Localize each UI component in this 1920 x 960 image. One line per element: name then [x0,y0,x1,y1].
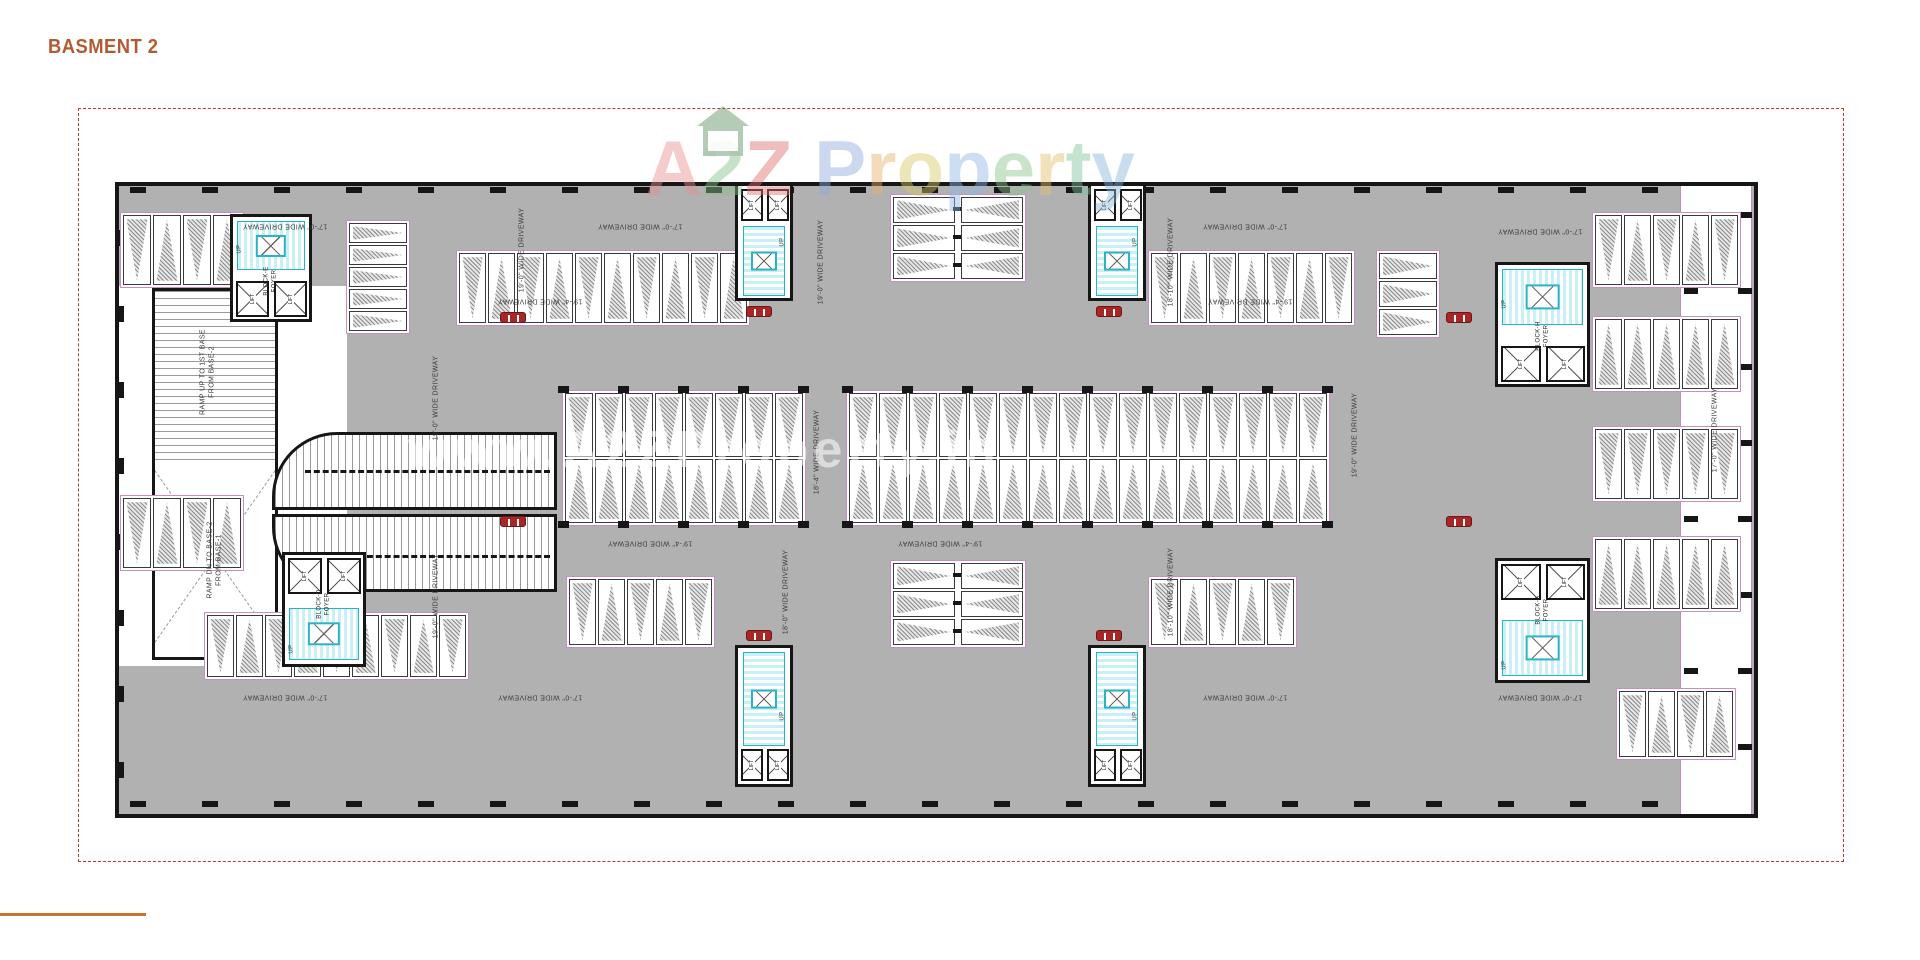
car-window [1104,633,1106,640]
parking-stall [349,223,407,243]
driveway-label: 17'-0" WIDE DRIVEWAY [498,692,583,701]
ramp-upper-arm [272,432,557,510]
stall-wedge [1656,432,1677,496]
column-tick [1210,801,1226,807]
parking-stall [575,253,602,323]
stall-wedge [1656,542,1677,606]
parking-stall [999,459,1027,523]
column-tick [1282,801,1298,807]
stall-wedge [568,462,590,520]
stall-wedge [1680,694,1701,754]
stair-up-label: UP [1501,660,1509,669]
stall-wedge [882,396,904,454]
stall-wedge [1242,462,1264,520]
stall-wedge [598,462,620,520]
stall-wedge [912,462,934,520]
parking-stall [1089,459,1117,523]
car-window [1463,519,1465,526]
stall-wedge [1002,462,1024,520]
parking-stall [879,459,907,523]
parking-stall-group [566,576,715,648]
stall-wedge [1598,322,1619,386]
parking-stall [1209,459,1237,523]
parking-stall [961,591,1023,617]
column-tick [118,458,124,474]
parking-stall [1653,319,1680,389]
column-tick [1570,801,1586,807]
parking-stall [1209,253,1236,323]
stall-wedge [1182,396,1204,454]
stall-wedge [942,396,964,454]
stall-wedge [126,218,148,282]
parking-stall [1619,691,1646,757]
stall-wedge [718,462,740,520]
column-tick [1082,521,1093,528]
lift-shaft: LIFT [1546,346,1586,382]
column-tick [922,801,938,807]
stall-row [565,393,803,457]
car-icon [1096,306,1122,317]
driveway-label: 18'-0" WIDE DRIVEWAY [783,550,792,635]
parking-stall [1653,429,1680,499]
stall-wedge [1272,462,1294,520]
column-tick [1282,187,1298,193]
floor-plan: LIFTLIFTBLOCK-E FOYERUPLIFTLIFTBLOCK-D F… [0,0,1920,960]
driveway-label: 19'-4" WIDE DRIVEWAY [1208,296,1293,305]
parking-stall [1595,215,1622,285]
lift-label: LIFT [1102,759,1108,771]
parking-stall [685,579,712,645]
stall-wedge [688,462,710,520]
parking-stall [1269,459,1297,523]
lift-label: LIFT [775,759,781,771]
stall-wedge [1656,218,1677,282]
column-tick [1642,801,1658,807]
lift-label: LIFT [749,759,755,771]
parking-stall [565,393,593,457]
lift-label: LIFT [1562,358,1568,370]
parking-stall [1267,579,1294,645]
column-tick [1354,801,1370,807]
stall-wedge [628,462,650,520]
parking-stall [745,393,773,457]
stall-wedge [462,256,483,320]
driveway-label: 18'-4" WIDE DRIVEWAY [814,410,823,495]
lift-label: LIFT [288,293,294,305]
block-foyer-label: BLOCK-H FOYER [1535,321,1550,350]
parking-stall [153,498,181,568]
column-tick [1202,386,1213,393]
parking-stall [1119,393,1147,457]
column-tick [490,187,506,193]
column-tick [1138,801,1154,807]
column-tick [418,801,434,807]
stall-wedge [964,622,1020,642]
column-tick [562,801,578,807]
parking-stall [969,393,997,457]
parking-stall [715,459,743,523]
lift-label: LIFT [302,570,308,582]
staircase [743,652,785,746]
car-window [1463,315,1465,322]
parking-stall [1648,691,1675,757]
car-window [517,519,519,526]
driveway-label: 17'-0" WIDE DRIVEWAY [1712,388,1721,473]
parking-stall [1059,459,1087,523]
driveway-label: 18'-10" WIDE DRIVEWAY [1168,548,1177,637]
parking-stall [1239,393,1267,457]
stall-wedge [896,594,952,614]
stall-wedge [972,462,994,520]
block-foyer-label: BLOCK-A FOYER [1535,595,1550,624]
stall-wedge [912,396,934,454]
driveway-label: 19'-4" WIDE DRIVEWAY [608,538,693,547]
parking-stall [685,393,713,457]
parking-stall [123,215,151,285]
parking-stall [1682,319,1709,389]
column-tick [953,629,961,633]
lift-shaft: LIFT [274,281,307,317]
stall-wedge [1122,396,1144,454]
stair-landing-box [1525,284,1560,309]
column-tick [1738,668,1752,674]
stall-wedge [126,501,148,565]
stall-wedge [658,396,680,454]
stall-wedge [1627,322,1648,386]
parking-stall [1624,319,1651,389]
column-tick [738,386,749,393]
parking-stall [849,459,877,523]
stall-wedge [384,618,405,674]
car-window [754,309,756,316]
stall-wedge [568,396,590,454]
parking-stall [569,579,596,645]
column-tick [1684,668,1698,674]
stair-landing-box [751,252,777,271]
parking-stall [879,393,907,457]
stall-wedge [630,582,651,642]
column-tick [953,235,961,239]
stall-wedge [1092,462,1114,520]
lift-label: LIFT [250,293,256,305]
page: BASMENT 2 LIFTLIFTBLOCK-E FOYERUPLIFTLIF… [0,0,1920,960]
stall-wedge [748,462,770,520]
stall-wedge [688,396,710,454]
driveway-label: 17'-0" WIDE DRIVEWAY [243,221,328,230]
car-icon [1446,312,1472,323]
stall-wedge [1685,542,1706,606]
parking-stall-block [562,390,806,526]
parking-stall [1711,215,1738,285]
lift-label: LIFT [1102,199,1108,211]
stall-wedge [972,396,994,454]
parking-stall-group [1616,688,1736,760]
stair-up-label: UP [779,711,787,720]
stall-wedge [186,501,208,565]
parking-stall [595,393,623,457]
stair-landing-box [256,234,286,256]
parking-stall [1238,253,1265,323]
parking-stall [893,563,955,589]
driveway-label: 19'-0" WIDE DRIVEWAY [519,208,528,293]
parking-stall [1595,429,1622,499]
car-window [1104,309,1106,316]
parking-stall [1682,539,1709,609]
column-tick [1738,744,1752,750]
car-window [763,309,765,316]
column-tick [953,263,961,267]
stall-wedge [1183,582,1204,642]
column-tick [1684,288,1698,294]
stall-wedge [352,248,404,262]
parking-stall [1595,319,1622,389]
parking-stall [349,267,407,287]
parking-stall [893,197,955,223]
driveway-label: 19'-0" WIDE DRIVEWAY [1352,393,1361,478]
stall-row [565,459,803,523]
stall-wedge [1182,462,1204,520]
stall-row [849,393,1327,457]
parking-stall [1239,459,1267,523]
column-tick [1022,521,1033,528]
column-tick [118,306,124,322]
parking-stall [1379,253,1437,279]
column-tick [902,386,913,393]
parking-stall [1711,319,1738,389]
parking-stall [775,459,803,523]
parking-stall [183,215,211,285]
parking-stall [1624,429,1651,499]
stall-wedge [896,228,952,248]
parking-stall [655,459,683,523]
parking-stall [625,459,653,523]
stall-wedge [156,501,178,565]
car-icon [500,312,526,323]
parking-stall [893,619,955,645]
parking-stall [1180,253,1207,323]
column-tick [1498,187,1514,193]
parking-stall [655,393,683,457]
parking-stall [1299,459,1327,523]
parking-stall [1180,579,1207,645]
stall-wedge [601,582,622,642]
column-tick [1498,801,1514,807]
stall-wedge [778,396,800,454]
column-tick [1426,801,1442,807]
column-tick [678,386,689,393]
driveway-label: 19'-4" WIDE DRIVEWAY [498,296,583,305]
parking-stall [1299,393,1327,457]
column-tick [953,601,961,605]
stall-wedge [210,618,231,674]
column-tick [778,801,794,807]
car-icon [746,306,772,317]
parking-stall [909,459,937,523]
lift-label: LIFT [1518,576,1524,588]
parking-stall [123,498,151,568]
stall-wedge [239,618,260,674]
column-tick [1738,288,1752,294]
stall-wedge [578,256,599,320]
parking-stall [893,591,955,617]
lift-label: LIFT [1128,759,1134,771]
column-tick [1262,386,1273,393]
stall-wedge [1685,432,1706,496]
parking-stall [961,197,1023,223]
parking-stall [207,615,234,677]
column-tick [962,386,973,393]
lift-label: LIFT [775,199,781,211]
stall-wedge [694,256,715,320]
stall-wedge [156,218,178,282]
driveway-label: 18'-10" WIDE DRIVEWAY [1168,218,1177,307]
lift-shaft: LIFT [767,749,789,781]
parking-stall [969,459,997,523]
staircase [1502,620,1583,676]
stall-wedge [1627,542,1648,606]
column-tick [706,801,722,807]
stall-wedge [1685,322,1706,386]
parking-stall [1677,691,1704,757]
car-window [763,633,765,640]
stall-wedge [1714,218,1735,282]
column-tick [842,521,853,528]
parking-stall [349,311,407,331]
staircase [1502,269,1583,325]
stall-wedge [1382,312,1434,332]
column-tick [953,207,961,211]
parking-stall [1682,215,1709,285]
stall-wedge [186,218,208,282]
stall-wedge [665,256,686,320]
column-tick [1570,187,1586,193]
stall-wedge [491,256,512,320]
parking-stall [685,459,713,523]
driveway-label: 19'-0" WIDE DRIVEWAY [818,220,827,305]
stall-wedge [1627,218,1648,282]
column-tick [850,187,866,193]
stall-wedge [1328,256,1349,320]
stall-wedge [852,396,874,454]
stall-wedge [778,462,800,520]
parking-stall [1089,393,1117,457]
car-window [508,519,510,526]
column-tick [902,521,913,528]
stall-wedge [659,582,680,642]
stall-wedge [896,256,952,276]
driveway-label: 17'-0" WIDE DRIVEWAY [1498,692,1583,701]
stall-wedge [413,618,434,674]
stall-wedge [1302,396,1324,454]
column-tick [953,573,961,577]
car-window [1113,633,1115,640]
column-tick [922,187,938,193]
stall-wedge [1598,218,1619,282]
parking-stall-group [346,220,410,334]
lift-shaft: LIFT [1546,564,1586,600]
parking-stall [745,459,773,523]
stall-wedge [1714,542,1735,606]
parking-stall [565,459,593,523]
stall-wedge [1651,694,1672,754]
column-tick [842,386,853,393]
stall-wedge [1152,462,1174,520]
column-tick [490,801,506,807]
parking-stall [1682,429,1709,499]
column-tick [1202,521,1213,528]
car-window [754,633,756,640]
stall-wedge [1627,432,1648,496]
parking-stall-group [1376,250,1440,338]
stall-wedge [748,396,770,454]
column-tick [1684,516,1698,522]
car-window [1454,315,1456,322]
parking-stall [1711,539,1738,609]
parking-stall [1706,691,1733,757]
column-tick [118,382,124,398]
stall-wedge [1062,462,1084,520]
column-tick [962,521,973,528]
stair-up-label: UP [1132,237,1140,246]
parking-stall [893,225,955,251]
parking-stall [999,393,1027,457]
parking-stall [909,393,937,457]
stair-landing-box [308,622,340,645]
column-tick [562,187,578,193]
parking-stall [1209,579,1236,645]
stall-wedge [607,256,628,320]
column-tick [346,187,362,193]
stall-wedge [1122,462,1144,520]
car-window [1113,309,1115,316]
parking-stall-group [1148,250,1355,326]
stair-up-label: UP [779,237,787,246]
stall-wedge [1685,218,1706,282]
stair-landing-box [751,690,777,709]
parking-stall [236,615,263,677]
driveway-label: 17'-0" WIDE DRIVEWAY [1203,221,1288,230]
lift-label: LIFT [1562,576,1568,588]
column-tick [274,801,290,807]
parking-stall-group [1592,316,1741,392]
car-icon [1446,516,1472,527]
column-tick [1262,521,1273,528]
column-tick [1066,187,1082,193]
parking-stall [1269,393,1297,457]
parking-stall [775,393,803,457]
parking-stall [1379,281,1437,307]
column-tick [558,386,569,393]
stall-wedge [1270,256,1291,320]
column-tick [1022,386,1033,393]
column-tick [1210,187,1226,193]
column-tick [994,801,1010,807]
parking-stall [381,615,408,677]
parking-stall [1119,459,1147,523]
column-tick [634,801,650,807]
parking-stall [961,563,1023,589]
block-foyer-label: BLOCK-E FOYER [264,266,279,295]
stall-wedge [628,396,650,454]
parking-stall [1296,253,1323,323]
column-tick [850,801,866,807]
stall-wedge [352,292,404,306]
lift-label: LIFT [749,199,755,211]
parking-stall [1149,393,1177,457]
lift-shaft: LIFT [741,749,763,781]
column-tick [618,386,629,393]
stall-wedge [1272,396,1294,454]
